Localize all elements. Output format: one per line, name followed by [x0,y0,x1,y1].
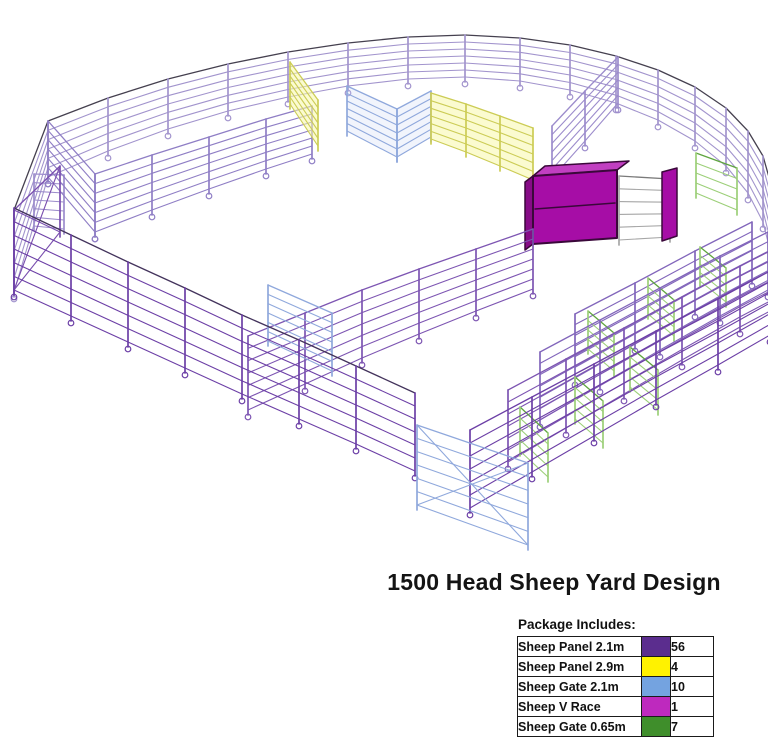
vrace-draft-panel [662,168,677,241]
legend-row: Sheep Panel 2.9m4 [518,657,714,677]
legend-color-swatch [642,717,671,737]
legend-table: Sheep Panel 2.1m56Sheep Panel 2.9m4Sheep… [517,636,714,737]
divider-1 [92,106,315,242]
legend-color-swatch [642,677,671,697]
gate-mid-1 [347,86,397,162]
gate-green-2 [575,377,603,448]
legend-color-swatch [642,697,671,717]
gate-mid-2 [397,91,431,162]
page-title: 1500 Head Sheep Yard Design [384,569,724,596]
legend-row: Sheep Panel 2.1m56 [518,637,714,657]
legend-color-swatch [642,637,671,657]
gate-corner-blue [417,425,528,550]
front-left [11,208,418,481]
perimeter-far [11,35,768,302]
legend-label-cell: Sheep V Race [518,697,642,717]
divider-2 [245,229,536,420]
race-fence-2 [467,271,768,518]
gate-green-4 [588,311,614,376]
legend-qty-cell: 7 [671,717,714,737]
panels-yellow-run [431,93,533,185]
legend-label-cell: Sheep Panel 2.9m [518,657,642,677]
yard-drawing [0,0,768,560]
legend-qty-cell: 10 [671,677,714,697]
legend-label-cell: Sheep Gate 0.65m [518,717,642,737]
legend-qty-cell: 56 [671,637,714,657]
legend-row: Sheep Gate 0.65m7 [518,717,714,737]
legend-header: Package Includes: [518,617,636,632]
legend-label-cell: Sheep Panel 2.1m [518,637,642,657]
panel-yellow-left [290,62,318,151]
legend-color-swatch [642,657,671,677]
legend-row: Sheep V Race1 [518,697,714,717]
legend-qty-cell: 1 [671,697,714,717]
legend-row: Sheep Gate 2.1m10 [518,677,714,697]
sheep-yard-design-page: 1500 Head Sheep Yard Design Package Incl… [0,0,768,740]
vrace-front-face [533,170,617,244]
legend-qty-cell: 4 [671,657,714,677]
legend-label-cell: Sheep Gate 2.1m [518,677,642,697]
